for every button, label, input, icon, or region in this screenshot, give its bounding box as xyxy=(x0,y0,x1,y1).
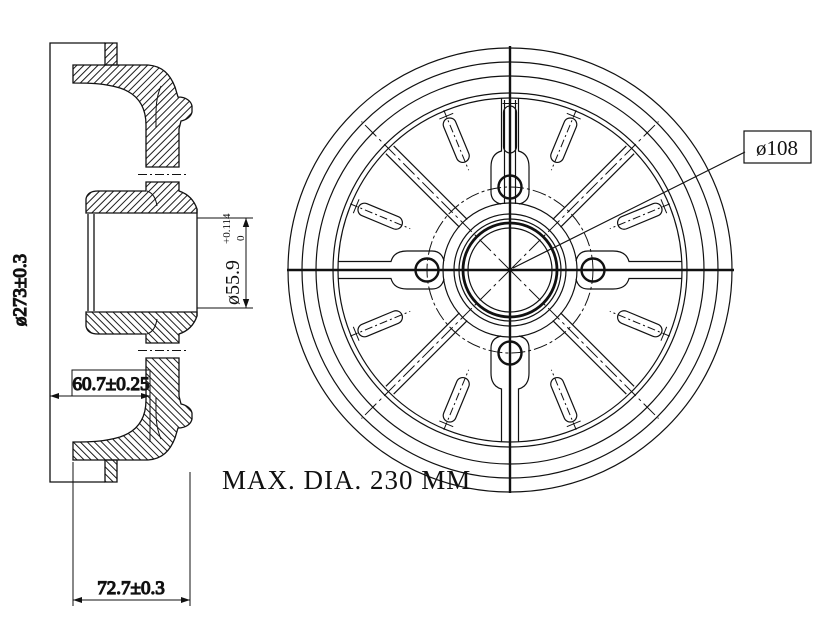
bore-tolerance-lower: 0 xyxy=(235,235,247,241)
mount-face-hub-section xyxy=(86,182,197,213)
brake-drum-technical-drawing: ø55.9 +0.114 0 60.7±0.25 72.7±0.3 ø273±0… xyxy=(0,0,822,630)
bolt-circle-label: ø108 xyxy=(756,136,798,160)
front-view: ø108 xyxy=(287,46,811,493)
bore-dimension-label: ø55.9 xyxy=(222,260,244,305)
dim-total-depth-label: 72.7±0.3 xyxy=(97,578,164,599)
dim-inner-depth-label: 60.7±0.25 xyxy=(73,374,150,395)
flange-lug-section xyxy=(105,43,117,65)
dim-outer-diameter-label: ø273±0.3 xyxy=(10,254,31,326)
section-view: ø55.9 +0.114 0 60.7±0.25 72.7±0.3 ø273±0… xyxy=(10,43,253,606)
bore-tolerance-upper: +0.114 xyxy=(221,213,233,244)
drawing-canvas: ø55.9 +0.114 0 60.7±0.25 72.7±0.3 ø273±0… xyxy=(0,0,822,630)
rim-band-section xyxy=(73,65,192,167)
drum-outer-edge xyxy=(50,43,105,482)
leader-line xyxy=(513,152,745,268)
max-diameter-note: MAX. DIA. 230 MM xyxy=(222,465,471,495)
